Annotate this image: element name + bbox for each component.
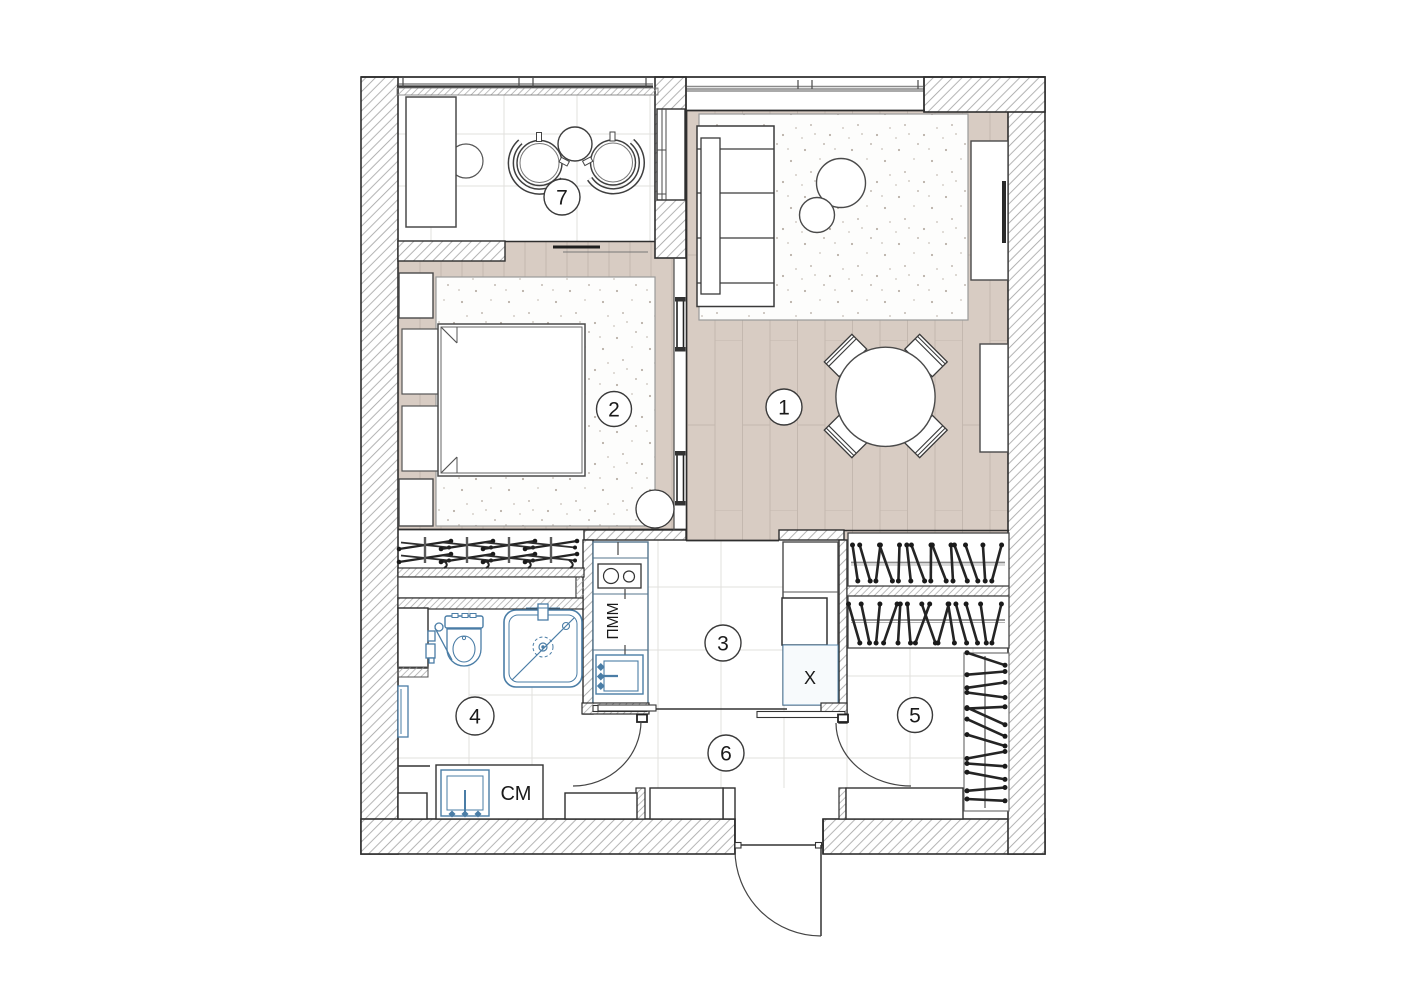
svg-text:ПММ: ПММ xyxy=(605,603,622,640)
svg-text:1: 1 xyxy=(778,397,790,420)
svg-text:3: 3 xyxy=(717,633,729,656)
svg-text:6: 6 xyxy=(720,743,732,766)
svg-text:5: 5 xyxy=(909,705,921,728)
svg-text:2: 2 xyxy=(608,399,620,422)
svg-text:СМ: СМ xyxy=(501,783,532,805)
svg-text:4: 4 xyxy=(469,706,481,729)
svg-text:X: X xyxy=(804,668,816,688)
svg-text:7: 7 xyxy=(556,187,568,210)
